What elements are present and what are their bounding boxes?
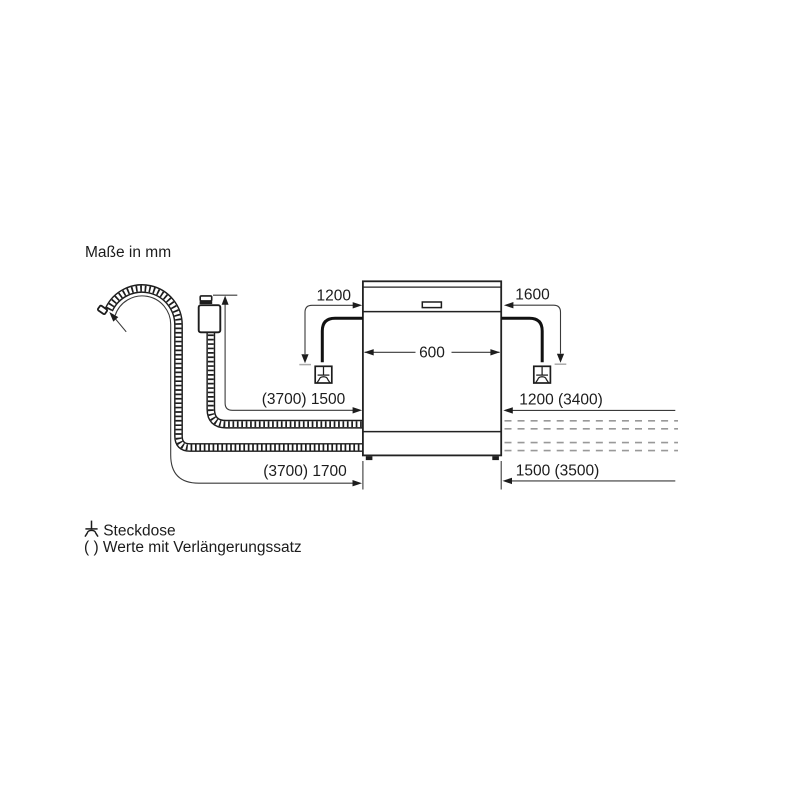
svg-text:Steckdose: Steckdose bbox=[103, 523, 175, 540]
svg-text:1500 (3500): 1500 (3500) bbox=[516, 462, 600, 479]
svg-text:1200: 1200 bbox=[316, 288, 351, 305]
svg-text:1200 (3400): 1200 (3400) bbox=[519, 392, 603, 409]
svg-text:(3700) 1500: (3700) 1500 bbox=[262, 391, 346, 408]
svg-text:(3700) 1700: (3700) 1700 bbox=[263, 463, 347, 480]
svg-text:( ) Werte mit Verlängerungssat: ( ) Werte mit Verlängerungssatz bbox=[84, 539, 302, 556]
svg-text:1600: 1600 bbox=[515, 287, 550, 304]
svg-text:600: 600 bbox=[419, 345, 445, 362]
svg-text:Maße in mm: Maße in mm bbox=[85, 244, 171, 261]
